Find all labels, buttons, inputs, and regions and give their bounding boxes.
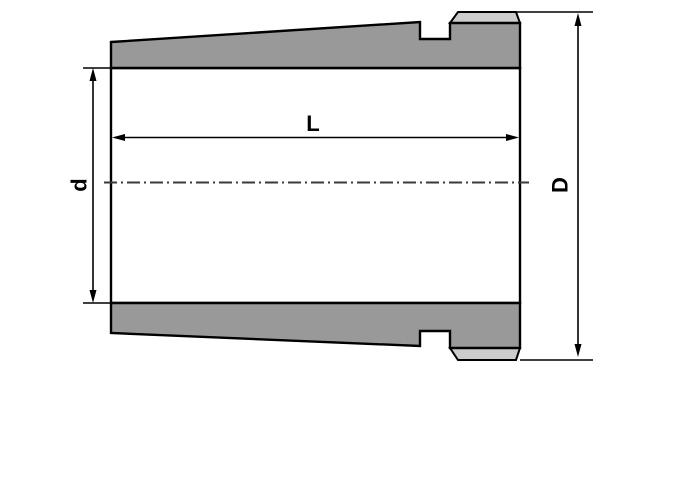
- arrowhead-down-icon: [90, 290, 97, 303]
- arrowhead-up-icon: [90, 68, 97, 81]
- dimension-label-d: d: [67, 178, 92, 191]
- dimension-d: d: [67, 68, 112, 303]
- sleeve-upper-section: [111, 22, 520, 68]
- dimension-label-D: D: [548, 177, 573, 193]
- drawing-canvas: d L D: [0, 0, 674, 501]
- arrowhead-down-icon: [575, 344, 582, 357]
- arrowhead-up-icon: [575, 13, 582, 26]
- sleeve-bore-body: [111, 68, 520, 303]
- technical-drawing: d L D: [0, 0, 674, 501]
- sleeve-lower-section: [111, 303, 520, 348]
- locknut-chamfer-top: [450, 12, 520, 23]
- dimension-label-L: L: [306, 111, 319, 136]
- locknut-chamfer-bottom: [450, 348, 520, 360]
- dimension-D: D: [516, 12, 593, 360]
